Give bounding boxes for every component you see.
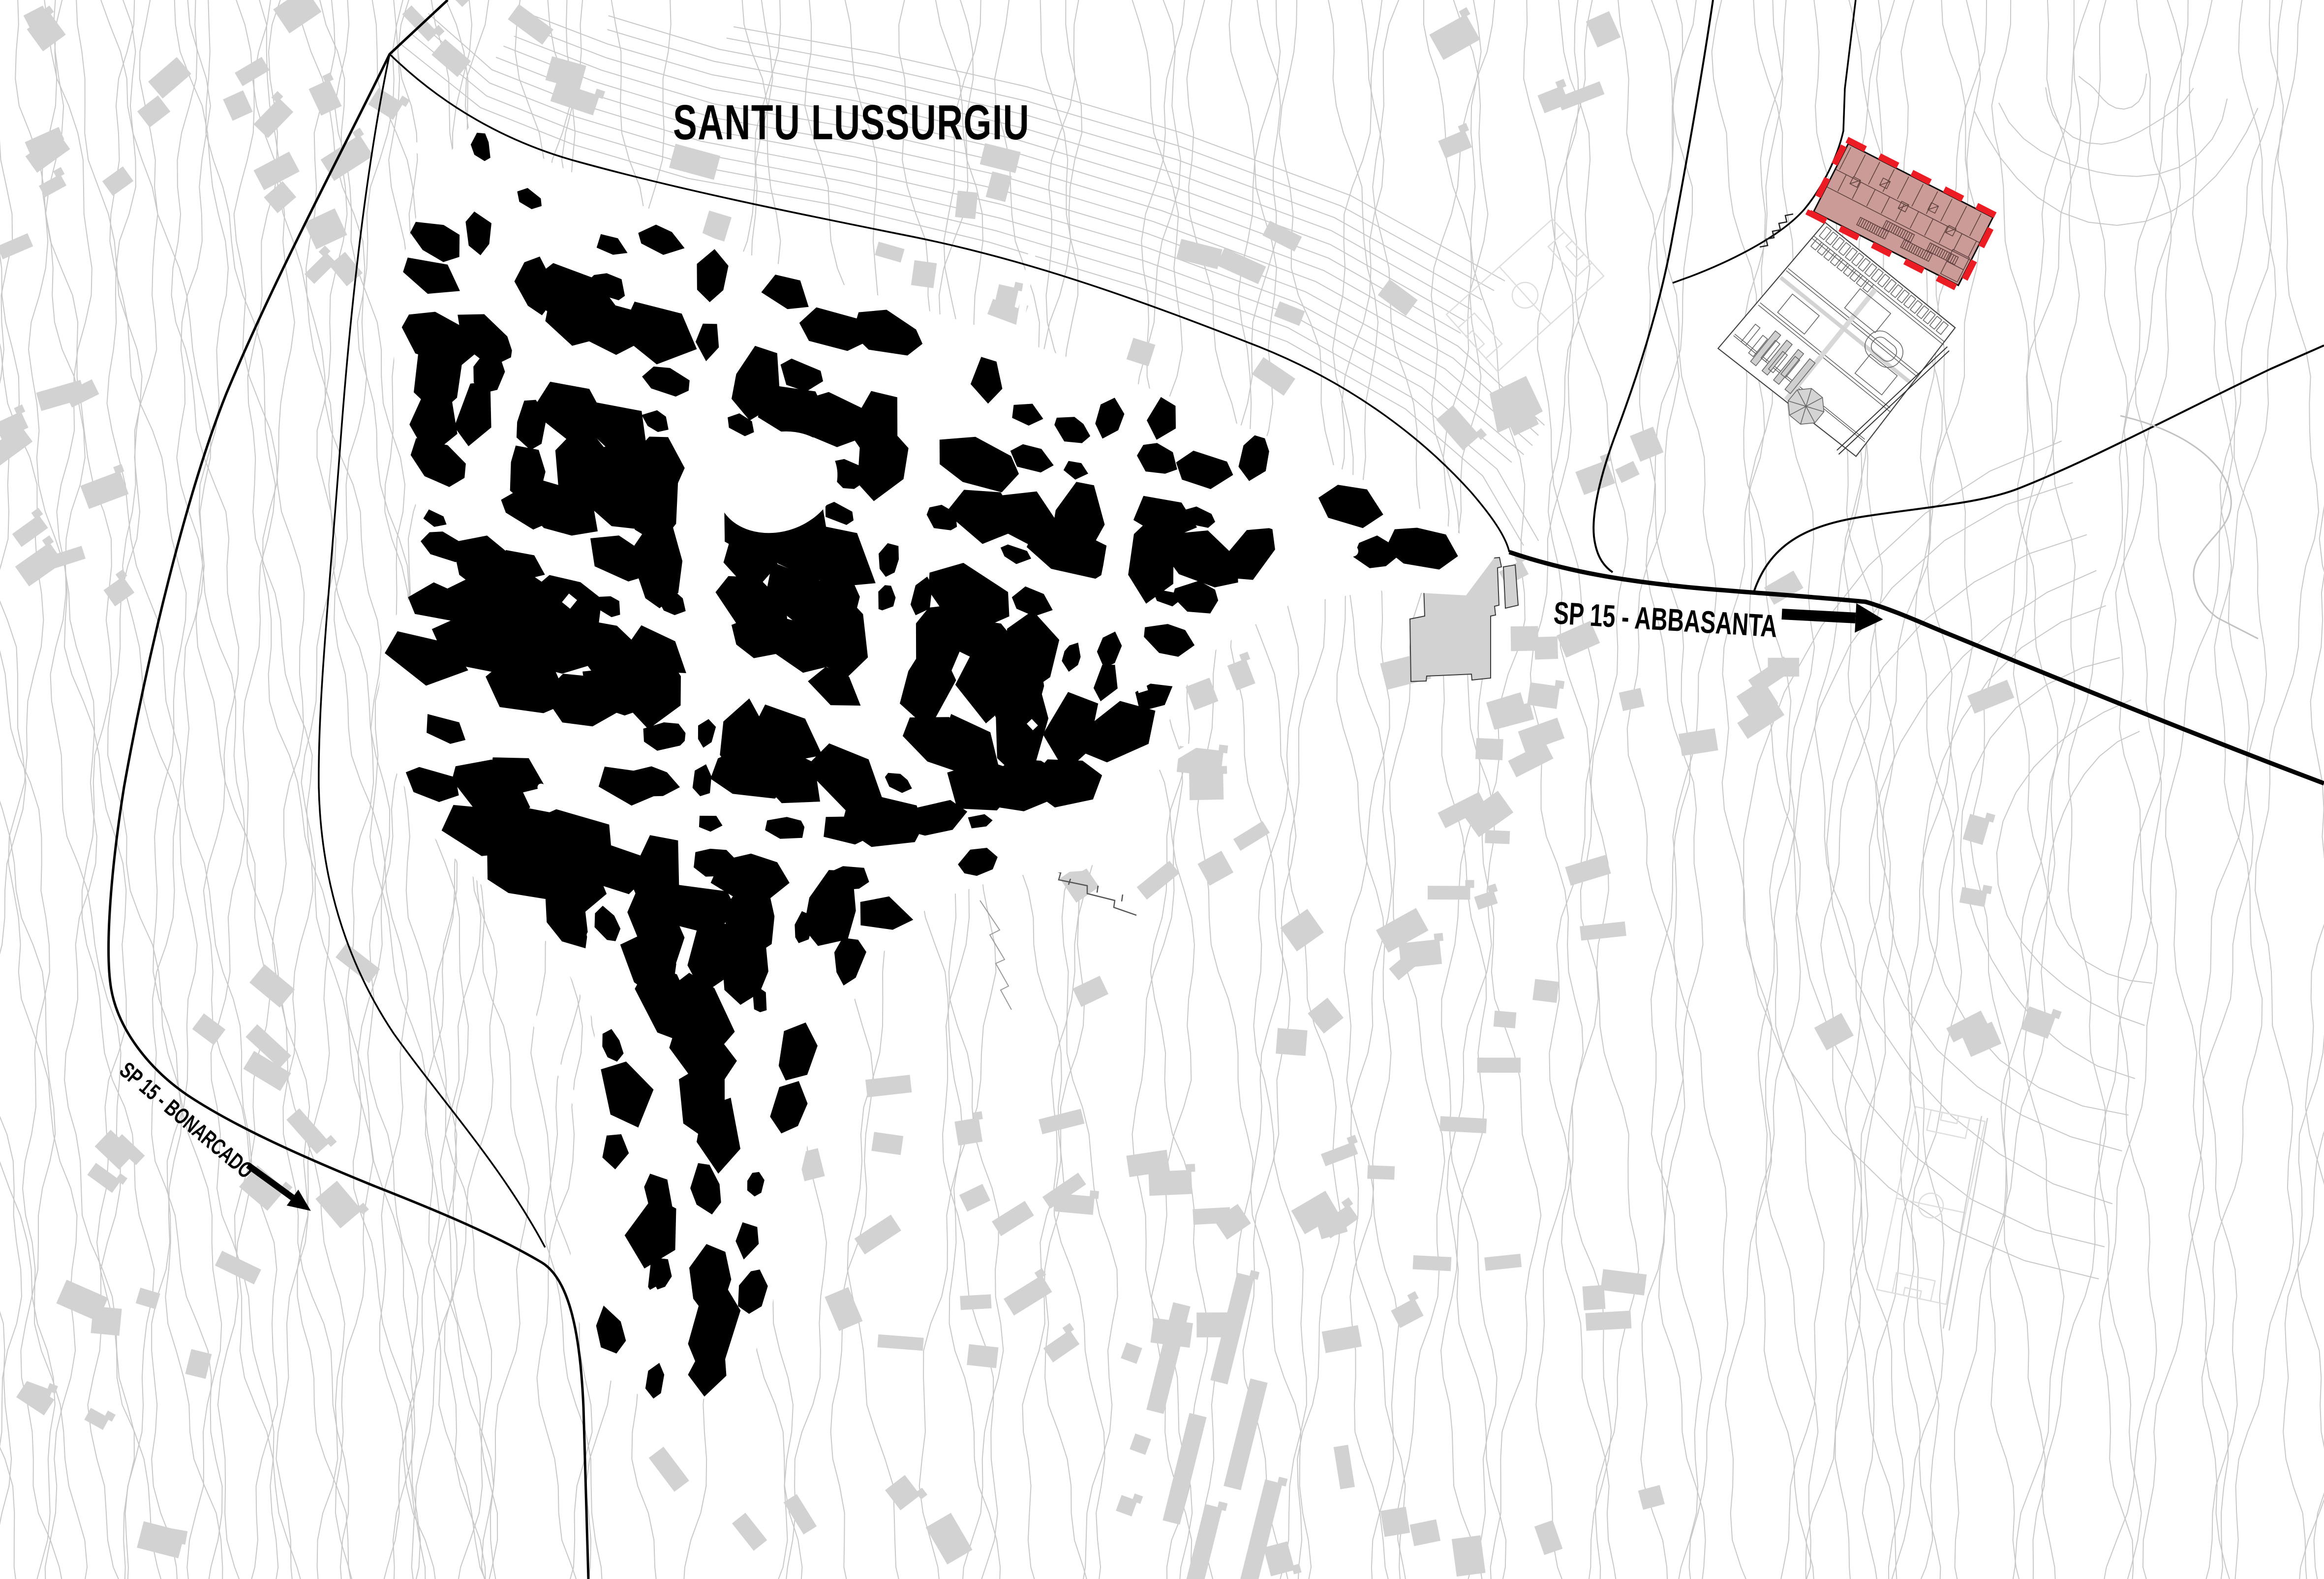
map-title: SANTU LUSSURGIU	[673, 95, 1030, 150]
church-annex	[1503, 565, 1518, 608]
school-building	[1490, 376, 1543, 436]
road-sp15-abbasanta-path	[1509, 552, 2324, 783]
football-field-south	[1877, 1107, 1985, 1304]
field-side-road	[1943, 1116, 1988, 1331]
site-plan: SANTU LUSSURGIU SP 15 - ABBASANTA SP 15 …	[0, 0, 2324, 1579]
map-canvas: SANTU LUSSURGIU SP 15 - ABBASANTA SP 15 …	[0, 0, 2324, 1579]
road-hairpin	[2120, 416, 2258, 639]
road-north-east	[1593, 0, 1713, 572]
